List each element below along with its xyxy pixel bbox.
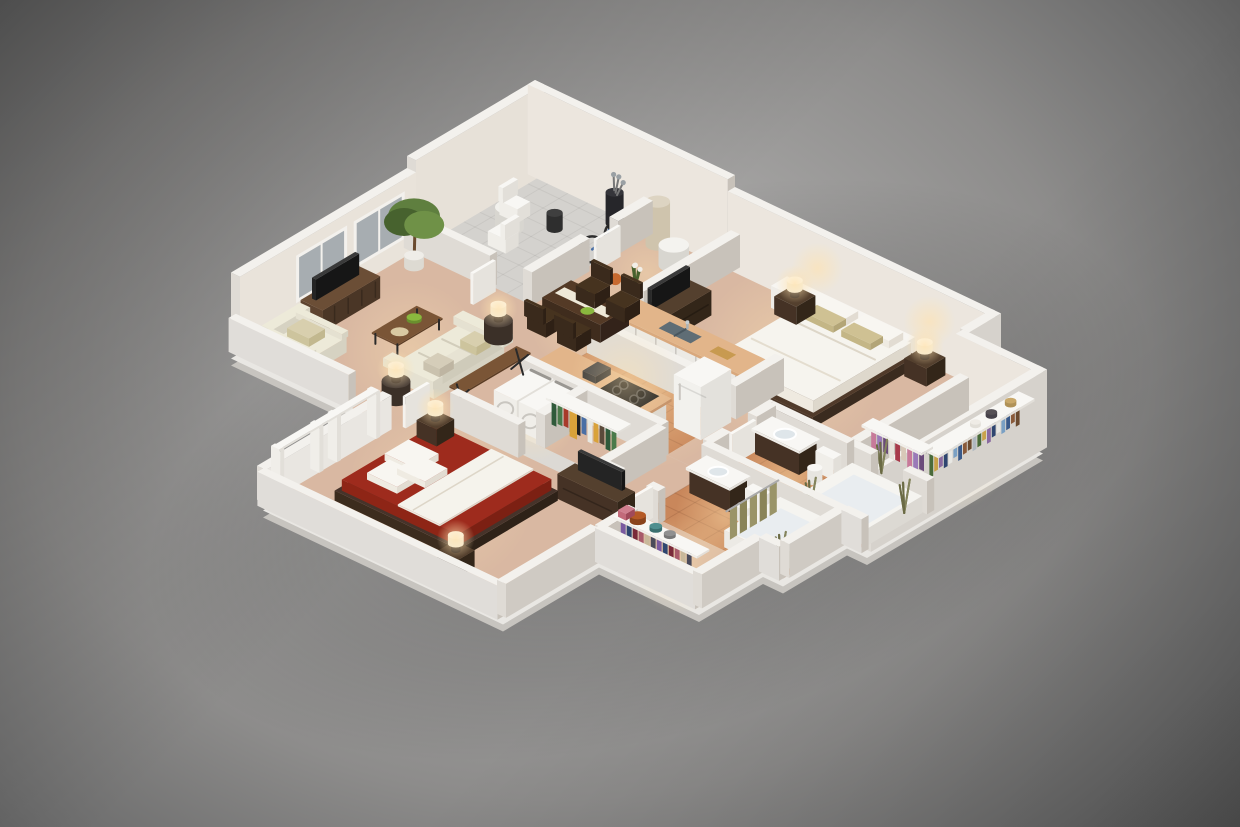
apartment-isometric-scene xyxy=(0,0,1240,827)
floorplan-3d-render xyxy=(0,0,1240,827)
